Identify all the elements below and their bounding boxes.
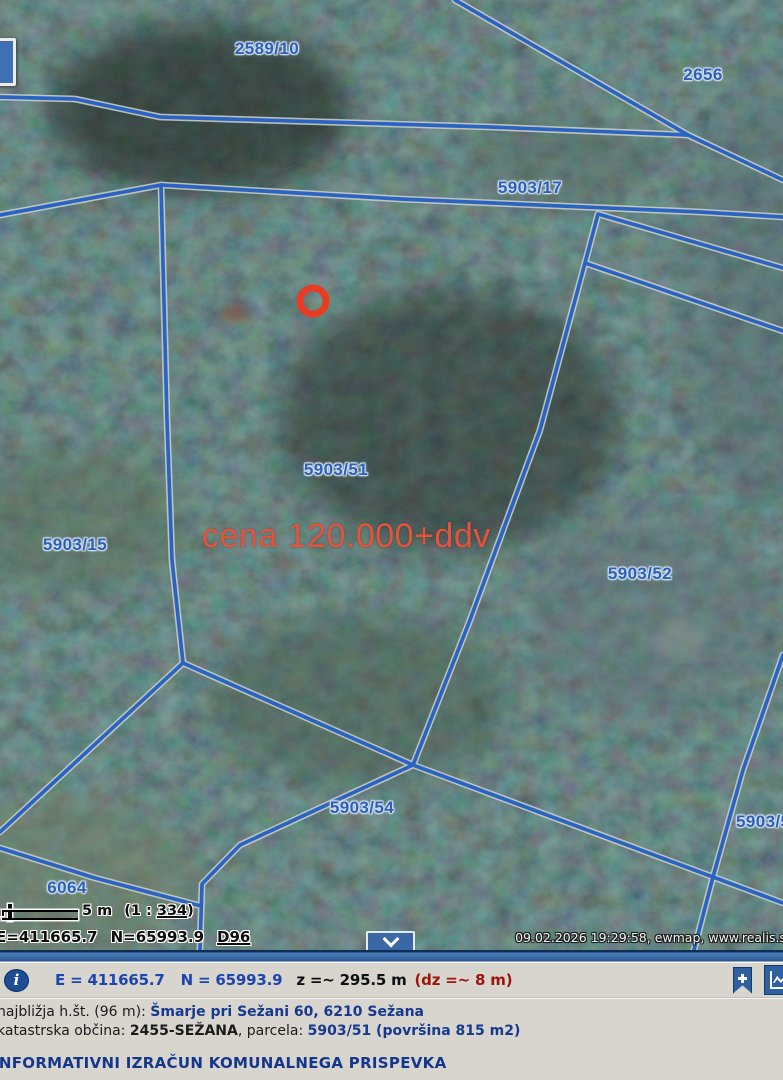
status-easting: E = 411665.7 [55, 971, 165, 989]
status-elevation: z =~ 295.5 m [296, 971, 406, 989]
cadastral-row: katastrska občina: 2455-SEŽANA, parcela:… [0, 1022, 783, 1041]
parcel-label-5903-15: 5903/15 [43, 535, 107, 555]
scale-bar-text: 5 m(1 : 334) [82, 903, 194, 919]
parcel-value[interactable]: 5903/51 (površina 815 m2) [308, 1023, 521, 1039]
parcel-label-5903-54: 5903/54 [330, 798, 394, 818]
status-northing: N = 65993.9 [181, 971, 283, 989]
cursor-coordinates-overlay: E=411665.7N=65993.9D96 [0, 928, 250, 946]
parcel-label-5903-52: 5903/52 [608, 564, 672, 584]
parcel-label-6064: 6064 [47, 878, 86, 898]
info-icon[interactable]: i [4, 969, 29, 992]
parcel-label-2589-10: 2589/10 [235, 39, 299, 59]
parcel-label-2656: 2656 [683, 65, 722, 85]
info-icon-glyph: i [14, 971, 20, 989]
parcel-label-5903-51: 5903/51 [304, 460, 368, 480]
parcel-label-5903-17: 5903/17 [498, 178, 562, 198]
panel-top-bar [0, 950, 783, 963]
communal-contribution-link[interactable]: INFORMATIVNI IZRAČUN KOMUNALNEGA PRISPEV… [0, 1054, 447, 1072]
nearest-address-value[interactable]: Šmarje pri Sežani 60, 6210 Sežana [150, 1004, 424, 1020]
cadastral-municipality: 2455-SEŽANA [130, 1023, 238, 1039]
plus-shape [741, 974, 744, 983]
coord-datum: D96 [217, 928, 250, 946]
height-profile-icon[interactable] [764, 965, 783, 995]
parcel-label-text: , parcela: [238, 1023, 308, 1039]
parcel-info-rows: najbližja h.št. (96 m): Šmarje pri Sežan… [0, 998, 783, 1041]
scale-distance: 5 m [82, 903, 112, 919]
coord-n: N=65993.9 [111, 928, 204, 946]
bottom-panel: i E = 411665.7 N = 65993.9 z =~ 295.5 m … [0, 963, 783, 1080]
scale-ratio-value: 334 [157, 903, 187, 919]
cadastral-label: katastrska občina: [0, 1023, 130, 1039]
map-canvas[interactable]: 2589/10 2656 5903/17 5903/51 5903/15 590… [0, 0, 783, 950]
bookmark-add-icon[interactable] [733, 967, 752, 994]
status-elevation-accuracy: (dz =~ 8 m) [415, 971, 513, 989]
map-credit: 09.02.2026 19:29:58, ewmap, www.realis.s [515, 930, 783, 945]
ewmap-viewer: { "map": { "parcel_labels": [ {"text": "… [0, 0, 783, 1080]
status-bar: i E = 411665.7 N = 65993.9 z =~ 295.5 m … [0, 963, 783, 998]
nearest-address-label: najbližja h.št. (96 m): [0, 1004, 150, 1020]
scale-ratio-prefix: (1 : [124, 903, 157, 919]
scale-ratio-suffix: ) [187, 903, 194, 919]
price-annotation: cena 120.000+ddv [202, 517, 491, 556]
link-row: INFORMATIVNI IZRAČUN KOMUNALNEGA PRISPEV… [0, 1053, 783, 1072]
panel-collapse-tab[interactable] [366, 931, 415, 950]
parcel-label-5903-5: 5903/5 [736, 812, 783, 832]
scale-bar-line [2, 910, 78, 920]
map-tool-button-partial[interactable] [0, 38, 16, 86]
coord-e: E=411665.7 [0, 928, 98, 946]
chevron-down-icon [382, 931, 399, 948]
nearest-address-row: najbližja h.št. (96 m): Šmarje pri Sežan… [0, 1003, 783, 1022]
